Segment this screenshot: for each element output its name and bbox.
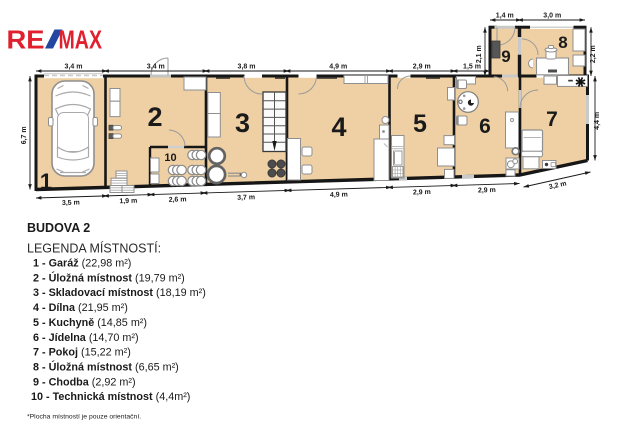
svg-text:2,9 m: 2,9 m — [478, 187, 496, 195]
svg-text:6,7 m: 6,7 m — [21, 126, 28, 144]
svg-text:RE: RE — [7, 25, 45, 55]
svg-text:7 - Pokoj (15,22 m²): 7 - Pokoj (15,22 m²) — [33, 347, 131, 359]
svg-text:1,9 m: 1,9 m — [119, 198, 137, 206]
svg-text:9 - Chodba (2,92 m²): 9 - Chodba (2,92 m²) — [33, 376, 136, 388]
svg-text:3 - Skladovací místnost (18,19: 3 - Skladovací místnost (18,19 m²) — [33, 287, 206, 299]
svg-text:6 - Jídelna (14,70 m²): 6 - Jídelna (14,70 m²) — [33, 332, 139, 344]
svg-text:3,7 m: 3,7 m — [237, 194, 255, 202]
svg-text:*Plocha místností je pouze ori: *Plocha místností je pouze orientační. — [27, 414, 141, 421]
svg-text:8 - Úložná místnost (6,65 m²): 8 - Úložná místnost (6,65 m²) — [33, 360, 179, 373]
svg-text:1: 1 — [40, 169, 52, 194]
svg-text:10: 10 — [164, 152, 176, 164]
svg-text:2 - Úložná místnost (19,79 m²): 2 - Úložná místnost (19,79 m²) — [33, 271, 185, 284]
svg-text:MAX: MAX — [59, 25, 103, 55]
svg-text:4 - Dílna (21,95 m²): 4 - Dílna (21,95 m²) — [33, 302, 128, 314]
svg-text:7: 7 — [546, 108, 558, 131]
svg-text:2,9 m: 2,9 m — [413, 189, 431, 197]
svg-text:1 - Garáž (22,98 m²): 1 - Garáž (22,98 m²) — [33, 258, 131, 270]
svg-text:10 - Technická místnost (4,4m²: 10 - Technická místnost (4,4m²) — [31, 391, 190, 403]
svg-text:6: 6 — [479, 115, 491, 138]
svg-text:2: 2 — [147, 102, 162, 132]
svg-text:8: 8 — [558, 33, 567, 52]
svg-text:2,2 m: 2,2 m — [590, 45, 597, 63]
svg-text:1,4 m: 1,4 m — [496, 13, 514, 20]
svg-text:3,4 m: 3,4 m — [65, 64, 83, 71]
svg-text:BUDOVA 2: BUDOVA 2 — [27, 221, 90, 235]
svg-text:3: 3 — [235, 108, 250, 138]
svg-text:9: 9 — [501, 47, 510, 66]
svg-text:5 - Kuchyně (14,85 m²): 5 - Kuchyně (14,85 m²) — [33, 317, 147, 329]
svg-text:4,4 m: 4,4 m — [594, 112, 601, 130]
svg-text:LEGENDA MÍSTNOSTÍ:: LEGENDA MÍSTNOSTÍ: — [27, 241, 161, 256]
svg-text:3,0 m: 3,0 m — [543, 13, 561, 20]
svg-text:2,9 m: 2,9 m — [413, 64, 431, 71]
svg-text:3,4 m: 3,4 m — [147, 64, 165, 71]
svg-text:4,9 m: 4,9 m — [329, 64, 347, 71]
svg-text:4: 4 — [331, 112, 346, 142]
svg-text:4,9 m: 4,9 m — [330, 191, 348, 199]
svg-text:3,8 m: 3,8 m — [238, 64, 256, 71]
svg-text:2,1 m: 2,1 m — [476, 45, 483, 63]
svg-text:3,5 m: 3,5 m — [62, 199, 80, 207]
svg-text:1,5 m: 1,5 m — [463, 64, 481, 71]
svg-text:5: 5 — [413, 110, 427, 138]
svg-text:2,6 m: 2,6 m — [169, 196, 187, 204]
